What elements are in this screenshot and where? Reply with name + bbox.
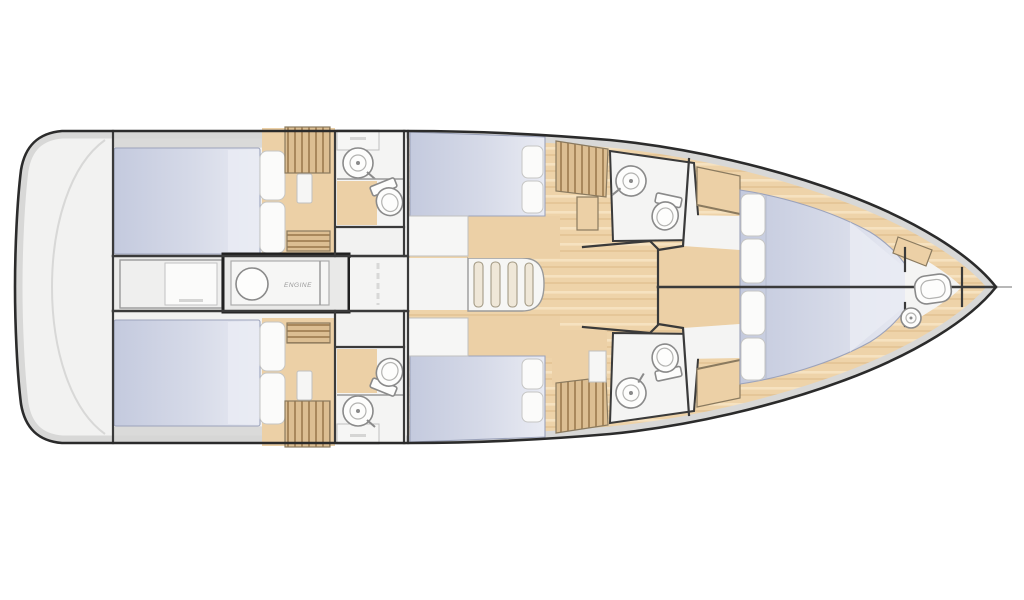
aft-head-starboard xyxy=(336,347,407,445)
sink-drain xyxy=(910,317,913,320)
cabin-wood-floor xyxy=(658,287,740,328)
mid-cabin-starboard xyxy=(408,316,608,442)
wardrobe-slats xyxy=(285,401,330,447)
cabin-wood-floor xyxy=(468,216,560,258)
pillow xyxy=(741,239,765,283)
pillow xyxy=(741,194,765,236)
cabin-steps xyxy=(287,323,330,343)
panel-mark xyxy=(179,299,203,302)
stair-tread xyxy=(474,262,483,307)
cabin-steps xyxy=(287,231,330,251)
cabinet xyxy=(577,197,598,230)
cabin-floor-white xyxy=(683,215,740,250)
pillow xyxy=(260,151,285,200)
engine-label: ENGINE xyxy=(284,282,312,289)
stair-landing xyxy=(408,258,470,310)
wardrobe-slats xyxy=(556,141,608,197)
counter-mark xyxy=(350,434,366,437)
pillow xyxy=(522,146,543,178)
yacht-floor-plan: ENGINE xyxy=(0,0,1024,600)
engine-room-band: ENGINE xyxy=(113,254,408,312)
pillow xyxy=(741,338,765,380)
stair-tread xyxy=(508,262,517,307)
bed-sheet-fold xyxy=(228,150,258,252)
pillow xyxy=(260,373,285,424)
seat xyxy=(297,174,312,203)
stair-tread xyxy=(525,263,533,306)
floor-plan-svg: ENGINE xyxy=(0,0,1024,600)
counter-mark xyxy=(350,137,366,140)
cabin-wood-floor xyxy=(658,246,740,287)
seat xyxy=(297,371,312,400)
stair-tread xyxy=(491,262,500,307)
cabin-cabinet xyxy=(408,216,468,256)
pillow xyxy=(522,181,543,213)
cabinet xyxy=(589,351,606,382)
aft-head-port xyxy=(336,129,407,227)
pillow xyxy=(522,392,543,422)
wardrobe-slats xyxy=(285,127,330,173)
equipment-panel xyxy=(165,263,217,305)
pillow xyxy=(260,322,285,371)
cabin-cabinet xyxy=(408,318,468,356)
companionway xyxy=(408,258,544,311)
wardrobe-slats xyxy=(556,377,608,433)
toilet xyxy=(913,273,953,306)
bed-sheet-fold xyxy=(228,322,258,424)
pillow xyxy=(260,202,285,253)
cabin-wood-floor xyxy=(468,316,560,358)
engine-flywheel xyxy=(236,268,268,300)
pillow xyxy=(522,359,543,389)
pillow xyxy=(741,291,765,335)
cabin-floor-white xyxy=(683,324,740,359)
